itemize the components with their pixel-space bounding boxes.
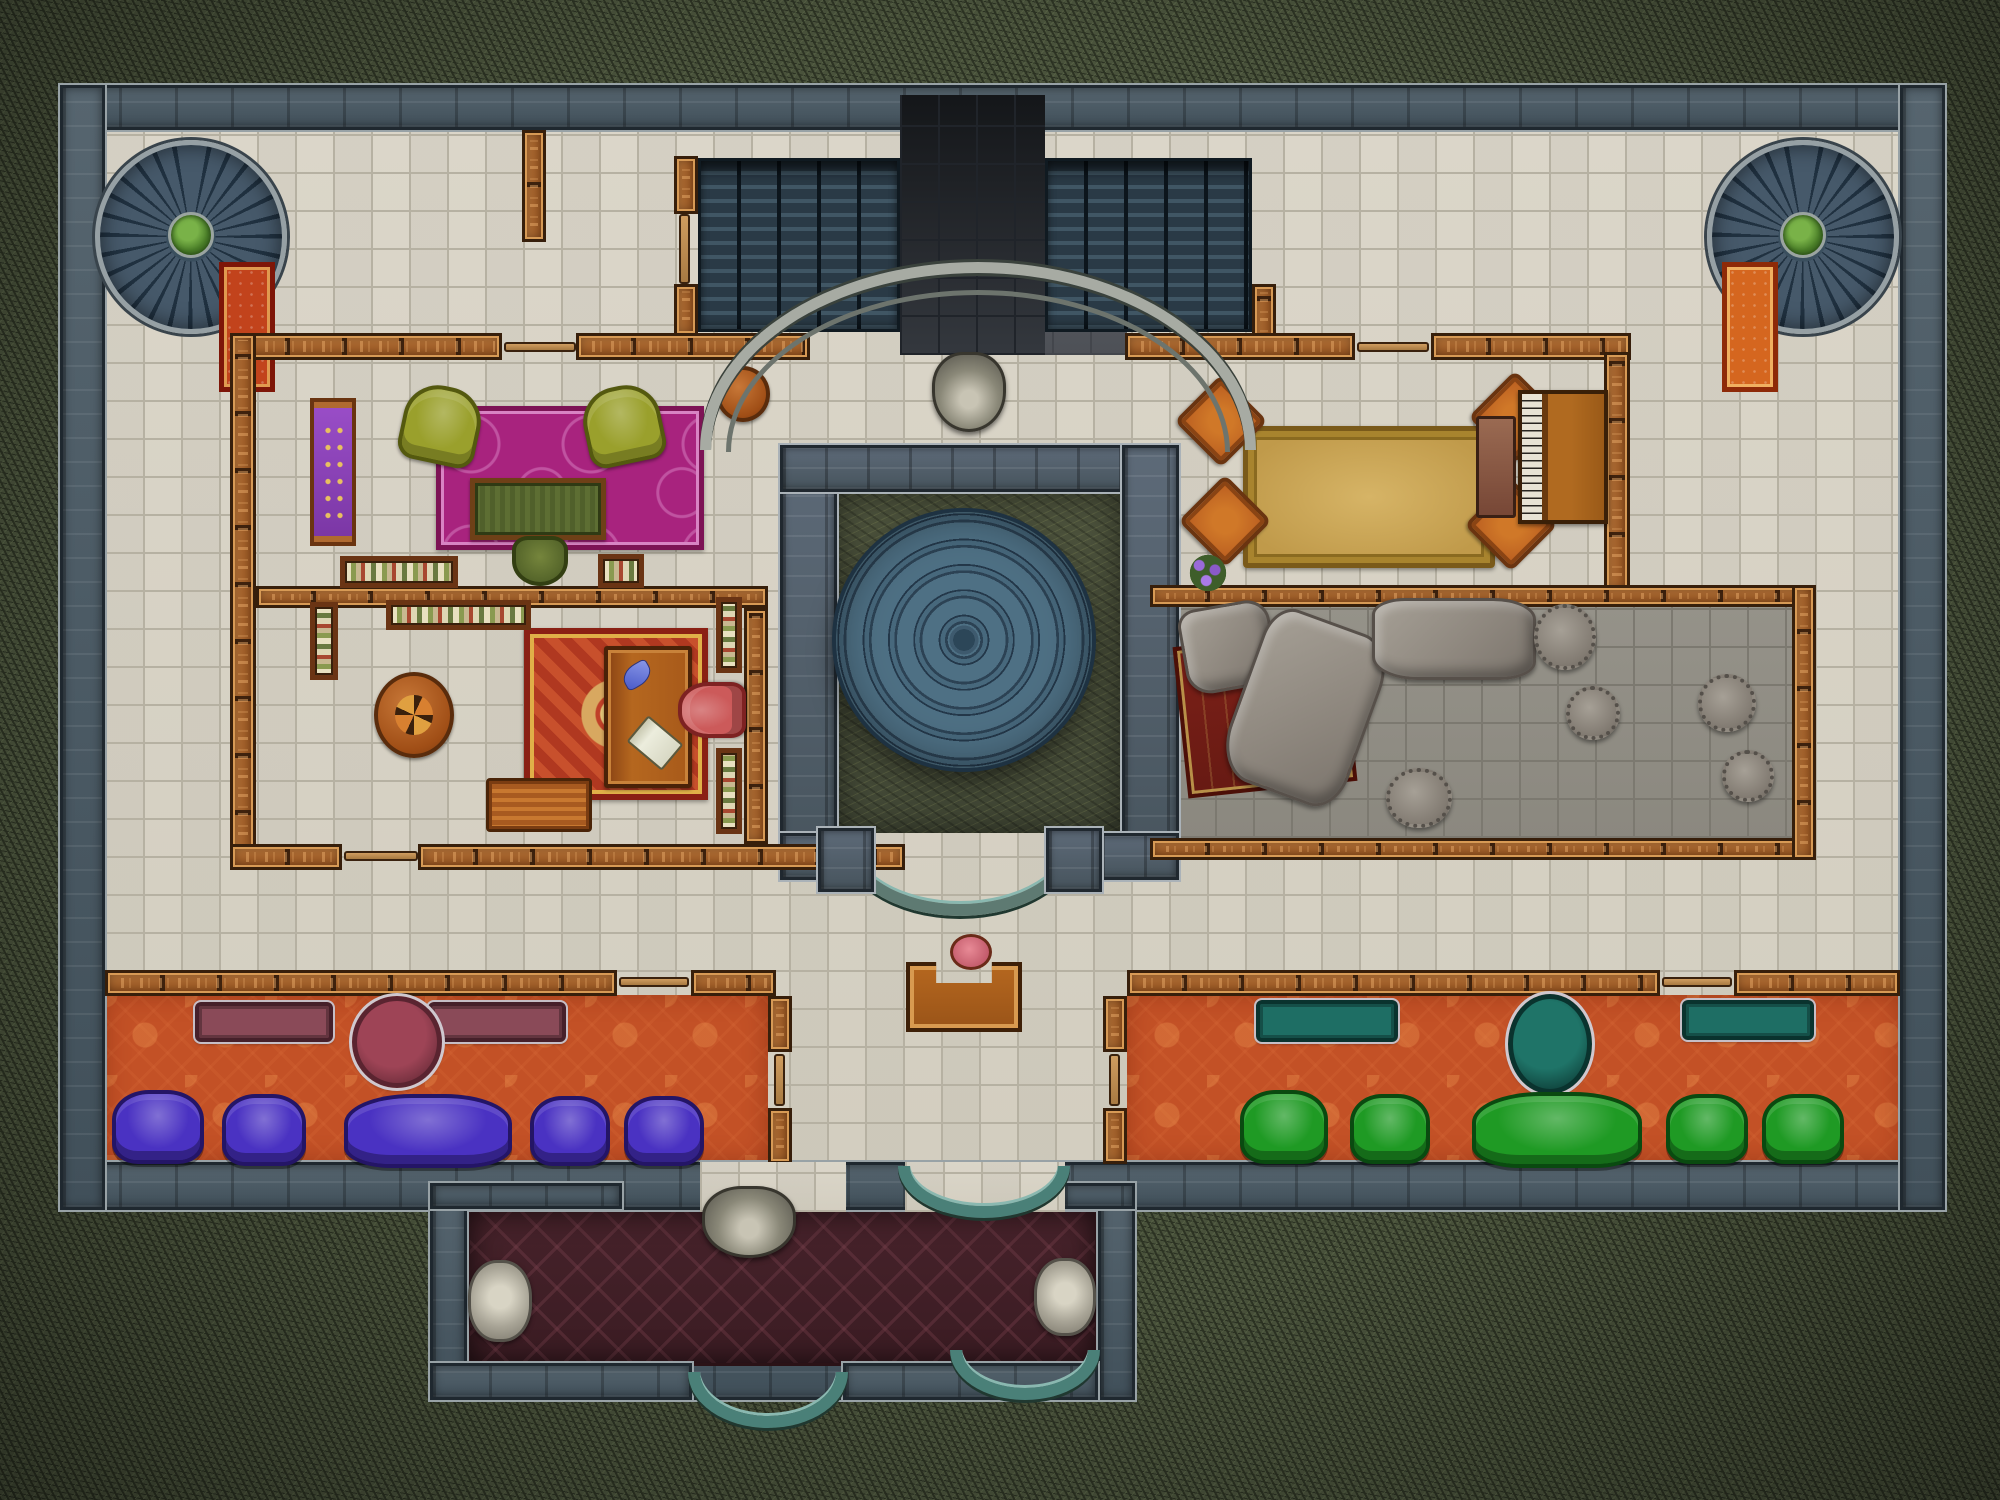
- east-parlor-door-west: [1109, 1054, 1120, 1106]
- flower-pot: [1186, 554, 1230, 592]
- east-parlor-door-north: [1662, 977, 1732, 987]
- office-chair: [678, 682, 746, 738]
- arch-ornament: [932, 352, 1006, 432]
- courtyard-wall-east: [1122, 445, 1179, 880]
- east-parlor-wall-west-b: [1103, 1108, 1127, 1164]
- east-parlor-wall-north-b: [1734, 970, 1900, 996]
- east-side-table-b: [1682, 1000, 1814, 1040]
- study-wall-west: [230, 333, 256, 870]
- study-wall-south-a: [230, 844, 342, 870]
- west-parlor-wall-north-a: [105, 970, 617, 996]
- piano: [1518, 390, 1608, 524]
- west-parlor-door-east: [774, 1054, 785, 1106]
- bookshelf-c: [310, 602, 338, 680]
- west-chair-b: [222, 1094, 306, 1166]
- courtyard-wall-west: [780, 445, 837, 880]
- storage-wall-east: [1792, 585, 1816, 860]
- study-door-north: [504, 342, 576, 352]
- dining-wall-north-b: [1431, 333, 1631, 360]
- spiral-plant-northeast: [1780, 212, 1826, 258]
- reception-stool: [950, 934, 992, 970]
- alcove-door: [679, 214, 690, 284]
- east-chair-d: [1762, 1094, 1844, 1164]
- porch-gargoyle: [702, 1186, 796, 1258]
- west-chair-d: [624, 1096, 704, 1166]
- west-parlor-wall-east-b: [768, 1108, 792, 1164]
- west-sofa: [344, 1094, 512, 1168]
- bookshelf-b: [598, 554, 644, 588]
- covered-table-c: [1386, 768, 1452, 828]
- mansion-battle-map: [0, 0, 2000, 1500]
- dining-table: [1243, 426, 1495, 568]
- west-side-table-b: [428, 1002, 566, 1042]
- office-bench: [486, 778, 592, 832]
- east-side-table-a: [1256, 1000, 1398, 1042]
- compass-table: [374, 672, 454, 758]
- east-chair-b: [1350, 1094, 1430, 1164]
- west-parlor-wall-north-b: [691, 970, 776, 996]
- east-oval-table: [1508, 994, 1592, 1094]
- west-chair-c: [530, 1096, 610, 1166]
- alcove-wall-west: [522, 130, 546, 242]
- office-wall-east: [744, 608, 768, 844]
- porch-statue-east: [1034, 1258, 1096, 1336]
- porch-wall-north-a: [430, 1183, 622, 1209]
- covered-table-b: [1566, 686, 1620, 740]
- bookshelf-f: [716, 748, 742, 834]
- east-sofa: [1472, 1092, 1642, 1168]
- east-parlor-wall-north-a: [1127, 970, 1660, 996]
- west-side-table-a: [195, 1002, 333, 1042]
- study-chair: [512, 536, 568, 586]
- porch-wall-north-b: [1062, 1183, 1135, 1209]
- porch-arch-south: [688, 1372, 848, 1428]
- west-parlor-wall-east-a: [768, 996, 792, 1052]
- spiral-plant-northwest: [168, 212, 214, 258]
- purple-cabinet: [310, 398, 356, 546]
- bookshelf-d: [386, 600, 531, 630]
- porch-wall-south-a: [430, 1363, 692, 1400]
- study-table: [470, 478, 606, 540]
- dining-door-north: [1357, 342, 1429, 352]
- covered-table-d: [1698, 674, 1756, 732]
- study-door-south: [344, 851, 418, 861]
- alcove-wall-east-a: [674, 156, 698, 214]
- west-parlor-door-north: [619, 977, 689, 987]
- stone-dome: [836, 512, 1092, 768]
- bridge-pillar-east: [1046, 828, 1102, 892]
- covered-sofa: [1372, 598, 1536, 680]
- porch-wall-east: [1098, 1183, 1135, 1400]
- study-wall-north-a: [230, 333, 502, 360]
- west-round-table: [352, 996, 442, 1088]
- covered-table-e: [1722, 750, 1774, 802]
- bridge-pillar-west: [818, 828, 874, 892]
- alcove-wall-east-b: [674, 284, 698, 336]
- east-chair-a: [1240, 1090, 1328, 1164]
- courtyard-wall-north: [780, 445, 1179, 492]
- wall-east: [1900, 85, 1945, 1210]
- west-chair-a: [112, 1090, 204, 1164]
- bookshelf-a: [340, 556, 458, 588]
- covered-table-a: [1534, 604, 1596, 670]
- porch-statue-west: [468, 1260, 532, 1342]
- bookshelf-e: [716, 597, 742, 673]
- east-parlor-wall-west-a: [1103, 996, 1127, 1052]
- runner-rug-northeast: [1722, 262, 1778, 392]
- piano-bench: [1476, 416, 1516, 518]
- east-chair-c: [1666, 1094, 1748, 1164]
- storage-wall-south: [1150, 838, 1816, 860]
